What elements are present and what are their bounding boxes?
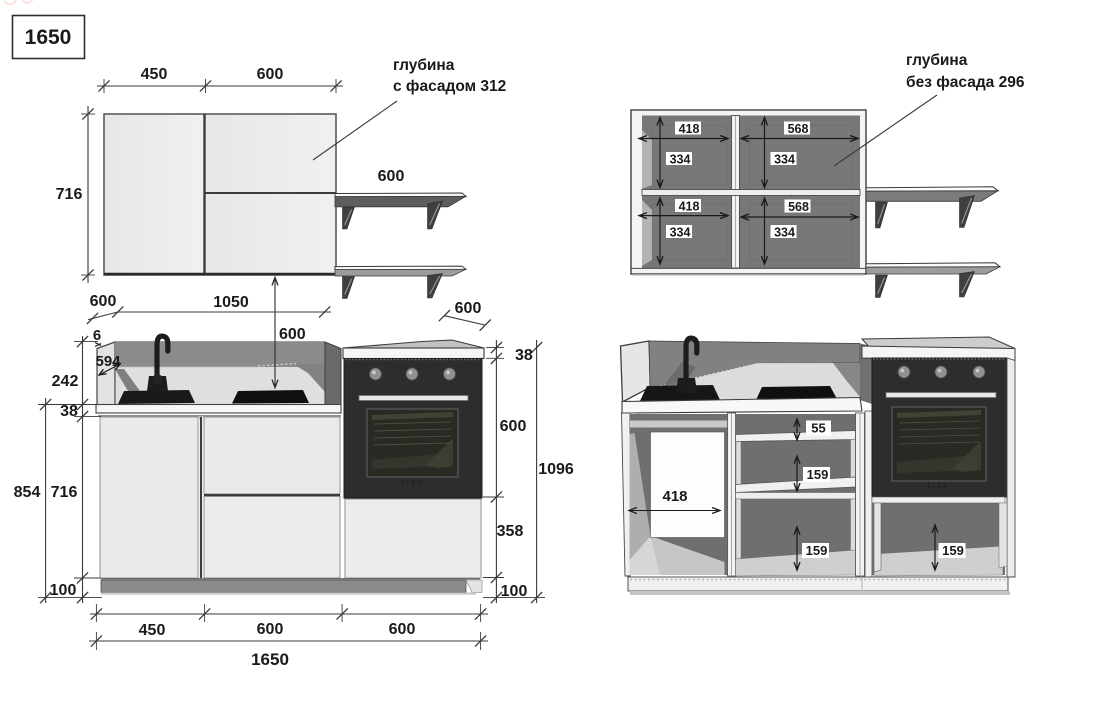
svg-text:38: 38	[515, 347, 533, 364]
svg-text:600: 600	[455, 300, 482, 317]
svg-text:334: 334	[670, 226, 691, 240]
svg-text:600: 600	[389, 621, 416, 638]
svg-text:55: 55	[811, 421, 825, 436]
svg-text:854: 854	[14, 484, 41, 501]
svg-text:358: 358	[497, 523, 524, 540]
svg-text:334: 334	[774, 153, 795, 167]
svg-text:418: 418	[662, 488, 687, 505]
svg-text:600: 600	[257, 621, 284, 638]
svg-text:1650: 1650	[25, 26, 72, 49]
svg-text:600: 600	[90, 293, 117, 310]
svg-text:1650: 1650	[251, 650, 289, 669]
svg-text:глубина: глубина	[906, 52, 968, 69]
svg-text:159: 159	[807, 467, 829, 482]
svg-text:ELEX: ELEX	[401, 481, 422, 487]
svg-text:334: 334	[670, 153, 691, 167]
svg-text:450: 450	[139, 622, 166, 639]
svg-text:600: 600	[500, 418, 527, 435]
svg-text:38: 38	[60, 403, 78, 420]
svg-text:с фасадом 312: с фасадом 312	[393, 78, 506, 95]
svg-text:716: 716	[51, 484, 78, 501]
svg-text:600: 600	[279, 326, 306, 343]
svg-text:1096: 1096	[538, 461, 574, 478]
svg-text:334: 334	[774, 226, 795, 240]
svg-text:100: 100	[50, 582, 77, 599]
svg-text:716: 716	[56, 186, 83, 203]
svg-text:159: 159	[942, 543, 964, 558]
svg-text:568: 568	[788, 122, 809, 136]
svg-text:глубина: глубина	[393, 57, 455, 74]
svg-text:450: 450	[141, 66, 168, 83]
svg-text:1050: 1050	[213, 294, 249, 311]
svg-text:600: 600	[378, 168, 405, 185]
svg-text:100: 100	[501, 583, 528, 600]
svg-text:600: 600	[257, 66, 284, 83]
svg-text:568: 568	[788, 200, 809, 214]
svg-text:418: 418	[679, 200, 700, 214]
svg-text:ELEX: ELEX	[927, 484, 948, 490]
svg-text:без фасада 296: без фасада 296	[906, 74, 1025, 91]
svg-text:242: 242	[52, 373, 79, 390]
svg-text:418: 418	[679, 122, 700, 136]
svg-text:159: 159	[806, 543, 828, 558]
